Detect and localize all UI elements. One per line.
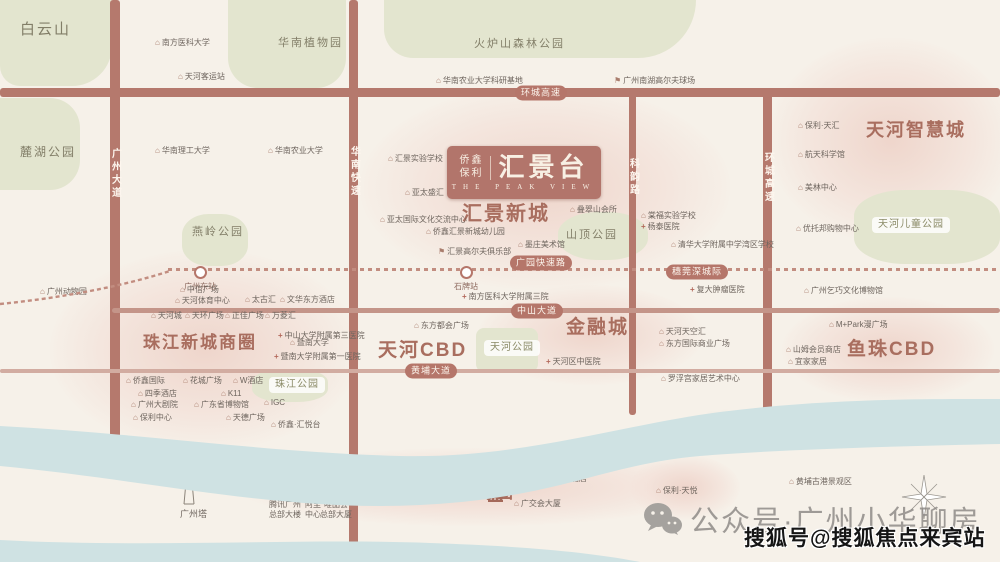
park-name-label: 火炉山森林公园 bbox=[474, 39, 565, 50]
poi-label: ⌂黄埔古港景观区 bbox=[789, 478, 852, 486]
park-name-label: 白云山 bbox=[20, 22, 71, 37]
building-icon: ⌂ bbox=[126, 377, 131, 385]
park-name-pill: 天河儿童公园 bbox=[872, 217, 950, 233]
poi-label: ⌂亚太盛汇 bbox=[405, 189, 444, 197]
poi-text: 美林中心 bbox=[805, 184, 837, 192]
poi-label: ⌂广东省博物馆 bbox=[194, 401, 249, 409]
poi-text: 侨鑫汇景新城幼儿园 bbox=[433, 228, 505, 236]
poi-text: 侨鑫·汇悦台 bbox=[278, 421, 321, 429]
hq-tower-label: ⌂腾讯广州总部大楼 bbox=[269, 488, 301, 520]
poi-label: ⌂天德广场 bbox=[226, 414, 265, 422]
poi-text: 复大肿瘤医院 bbox=[697, 286, 745, 294]
brand-icon: ⌂ bbox=[798, 122, 803, 130]
park-name-pill: 珠江公园 bbox=[269, 377, 325, 393]
museum-icon: ⌂ bbox=[194, 401, 199, 409]
poi-text: 汇景高尔夫俱乐部 bbox=[447, 248, 511, 256]
poi-label: ⌂太古汇 bbox=[245, 296, 276, 304]
mall-icon: ⌂ bbox=[221, 390, 226, 398]
poi-label: ⌂美林中心 bbox=[798, 184, 837, 192]
pazhou-complex-label: 琶洲会展中心 bbox=[452, 466, 500, 477]
poi-text: 罗浮宫家居艺术中心 bbox=[668, 375, 740, 383]
logo-divider bbox=[490, 156, 491, 180]
poi-text: M+Park漫广场 bbox=[836, 321, 888, 329]
poi-text: 墨庄美术馆 bbox=[525, 241, 565, 249]
poi-label: ⚑广州南湖高尔夫球场 bbox=[614, 77, 695, 85]
road-name-vertical: 华南快速 bbox=[347, 146, 362, 198]
poi-label: ⌂华南农业大学科研基地 bbox=[436, 77, 523, 85]
poi-label: ⌂宜家家居 bbox=[788, 358, 827, 366]
brand-icon: ⌂ bbox=[271, 421, 276, 429]
poi-label: ⌂广州乞巧文化博物馆 bbox=[804, 287, 883, 295]
road bbox=[629, 92, 636, 415]
poi-text: 东方国际商业广场 bbox=[666, 340, 730, 348]
poi-text: 广州南湖高尔夫球场 bbox=[623, 77, 695, 85]
school-icon: ⌂ bbox=[388, 155, 393, 163]
pazhou-complex-icon bbox=[406, 459, 450, 477]
building-icon: ⌂ bbox=[659, 328, 664, 336]
canton-tower-label: 广州塔 bbox=[180, 507, 207, 520]
qr-code bbox=[488, 486, 503, 502]
building-icon: ⌂ bbox=[380, 216, 385, 224]
poi-text: 汇景实验学校 bbox=[395, 155, 443, 163]
poi-label: ⌂天河城 bbox=[151, 312, 182, 320]
district-label: 天河智慧城 bbox=[866, 121, 966, 139]
logo-brand-qiaoxin: 侨鑫 bbox=[459, 155, 483, 168]
building-icon: ⌂ bbox=[661, 375, 666, 383]
hotel-icon: ⌂ bbox=[138, 390, 143, 398]
poi-label: ⌂天河体育中心 bbox=[175, 297, 230, 305]
park-name-label: 燕岭公园 bbox=[192, 227, 244, 238]
poi-text: 宜家家居 bbox=[795, 358, 827, 366]
poi-label: ⌂中信广场 bbox=[180, 286, 219, 294]
logo-brands: 侨鑫 保利 bbox=[459, 155, 483, 180]
mall-icon: ⌂ bbox=[225, 312, 230, 320]
school-icon: ⌂ bbox=[290, 339, 295, 347]
district-label: 琶洲商圈 bbox=[435, 483, 515, 501]
hq-tower-line1: 唯品会 bbox=[320, 500, 352, 510]
park-area bbox=[0, 0, 112, 86]
hq-tower-line1: 腾讯广州 bbox=[269, 500, 301, 510]
road-name-badge: 穗莞深城际 bbox=[666, 265, 728, 280]
poi-label: ⌂保利中心 bbox=[133, 414, 172, 422]
plaza-icon: ⌂ bbox=[183, 377, 188, 385]
logo-brand-poly: 保利 bbox=[459, 168, 483, 181]
museum-icon: ⌂ bbox=[798, 151, 803, 159]
mall-icon: ⌂ bbox=[185, 312, 190, 320]
poi-label: ⌂保利·天汇 bbox=[798, 122, 840, 130]
building-icon: ⌂ bbox=[570, 206, 575, 214]
school-icon: ⌂ bbox=[426, 228, 431, 236]
project-logo: 侨鑫 保利 汇景台 THE PEAK VIEW bbox=[447, 146, 601, 199]
poi-label: ⌂天河客运站 bbox=[178, 73, 225, 81]
poi-text: 天河城 bbox=[158, 312, 182, 320]
poi-label: ⌂正佳广场 bbox=[225, 312, 264, 320]
museum-icon: ⌂ bbox=[131, 401, 136, 409]
logo-subtitle: THE PEAK VIEW bbox=[452, 184, 597, 191]
poi-text: 四季酒店 bbox=[145, 390, 177, 398]
poi-label: ⌂K11 bbox=[221, 390, 241, 398]
building-icon: ⌂ bbox=[414, 322, 419, 330]
poi-label: ⌂华南农业大学 bbox=[268, 147, 323, 155]
poi-label: ⌂航天科学馆 bbox=[798, 151, 845, 159]
poi-text: 香格里拉大酒店 bbox=[531, 475, 587, 483]
river-name-jiang: 江 bbox=[831, 407, 858, 441]
hq-tower-line2: 总部大楼 bbox=[269, 510, 301, 520]
poi-label: ⌂华南理工大学 bbox=[155, 147, 210, 155]
poi-text: 天环广场 bbox=[192, 312, 224, 320]
road bbox=[110, 0, 120, 458]
museum-icon: ⌂ bbox=[804, 287, 809, 295]
park-name-pill: 会展公园 bbox=[371, 485, 427, 501]
building-icon: ⌂ bbox=[320, 488, 352, 500]
hospital-icon: + bbox=[274, 353, 279, 361]
poi-text: 南方医科大学附属三院 bbox=[469, 293, 549, 301]
poi-label: ⌂侨鑫汇景新城幼儿园 bbox=[426, 228, 505, 236]
poi-text: 广州大剧院 bbox=[138, 401, 178, 409]
mall-icon: ⌂ bbox=[786, 346, 791, 354]
wechat-icon bbox=[642, 501, 682, 537]
school-icon: ⌂ bbox=[268, 147, 273, 155]
poi-text: 广州动物园 bbox=[47, 288, 87, 296]
poi-text: 杨泰医院 bbox=[648, 223, 680, 231]
station-icon bbox=[460, 266, 473, 279]
poi-label: +暨南大学附属第一医院 bbox=[274, 353, 361, 361]
station-label: 石牌站 bbox=[454, 281, 478, 292]
school-icon: ⌂ bbox=[671, 241, 676, 249]
poi-label: ⌂南方医科大学 bbox=[155, 39, 210, 47]
mall-icon: ⌂ bbox=[796, 225, 801, 233]
poi-text: 保利中心 bbox=[140, 414, 172, 422]
road-name-vertical: 广州大道 bbox=[108, 148, 123, 200]
poi-label: ⌂山姆会员商店 bbox=[786, 346, 841, 354]
railway-dotted-line bbox=[168, 268, 1000, 271]
poi-label: ⌂万菱汇 bbox=[265, 312, 296, 320]
poi-label: ⌂四季酒店 bbox=[138, 390, 177, 398]
poi-label: +南方医科大学附属三院 bbox=[462, 293, 549, 301]
park-area bbox=[0, 98, 80, 190]
school-icon: ⌂ bbox=[641, 212, 646, 220]
poi-text: 广东省博物馆 bbox=[201, 401, 249, 409]
building-icon: ⌂ bbox=[798, 184, 803, 192]
museum-icon: ⌂ bbox=[518, 241, 523, 249]
poi-label: ⌂广州大剧院 bbox=[131, 401, 178, 409]
pearl-river-south bbox=[0, 540, 640, 562]
scenic-icon: ⌂ bbox=[256, 478, 261, 486]
poi-label: ⌂暨南大学 bbox=[290, 339, 329, 347]
district-label: 金融城 bbox=[566, 318, 629, 337]
road bbox=[0, 369, 1000, 373]
mall-icon: ⌂ bbox=[151, 312, 156, 320]
poi-text: 中信广场 bbox=[187, 286, 219, 294]
poi-label: ⌂文华东方酒店 bbox=[280, 296, 335, 304]
poi-label: ⌂花城广场 bbox=[183, 377, 222, 385]
poi-label: ⌂清华大学附属中学湾区学校 bbox=[671, 241, 774, 249]
park-name-label: 华南植物园 bbox=[278, 38, 343, 49]
golf-icon: ⚑ bbox=[438, 248, 445, 256]
poi-label: +杨泰医院 bbox=[641, 223, 680, 231]
district-label: 鱼珠CBD bbox=[847, 340, 936, 359]
building-icon: ⌂ bbox=[305, 488, 321, 500]
poi-label: ⌂墨庄美术馆 bbox=[518, 241, 565, 249]
poi-text: 天河客运站 bbox=[185, 73, 225, 81]
location-map: 环城高速广园快速路穗莞深城际中山大道黄埔大道广州大道华南快速科韵路环城高速广州东… bbox=[0, 0, 1000, 562]
transport-icon: ⌂ bbox=[178, 73, 183, 81]
logo-project-name: 汇景台 bbox=[498, 155, 588, 181]
road-name-badge: 黄埔大道 bbox=[405, 364, 457, 379]
hotel-icon: ⌂ bbox=[280, 296, 285, 304]
road-name-badge: 环城高速 bbox=[515, 86, 567, 101]
park-name-pill: 天河公园 bbox=[484, 340, 540, 356]
zoo-icon: ⌂ bbox=[40, 288, 45, 296]
poi-text: 天德广场 bbox=[233, 414, 265, 422]
poi-text: 侨鑫国际 bbox=[133, 377, 165, 385]
hospital-icon: + bbox=[690, 286, 695, 294]
poi-text: 棠福实验学校 bbox=[648, 212, 696, 220]
park-name-label: 山顶公园 bbox=[566, 230, 618, 241]
poi-text: 文华东方酒店 bbox=[287, 296, 335, 304]
building-icon: ⌂ bbox=[180, 286, 185, 294]
poi-label: ⌂保利·天悦 bbox=[656, 487, 698, 495]
scenic-icon: ⌂ bbox=[789, 478, 794, 486]
poi-text: 保利·天悦 bbox=[663, 487, 698, 495]
poi-label: ⌂侨鑫·汇悦台 bbox=[271, 421, 321, 429]
park-name-label: 麓湖公园 bbox=[20, 146, 76, 158]
hospital-icon: + bbox=[641, 223, 646, 231]
poi-text: 山姆会员商店 bbox=[793, 346, 841, 354]
poi-text: 天河天空汇 bbox=[666, 328, 706, 336]
hq-tower-label: ⌂唯品会总部大厦 bbox=[320, 488, 352, 520]
poi-text: 东方都会广场 bbox=[421, 322, 469, 330]
building-icon: ⌂ bbox=[226, 414, 231, 422]
district-label: 天河CBD bbox=[378, 341, 467, 360]
road-name-vertical: 环城高速 bbox=[761, 152, 776, 204]
school-icon: ⌂ bbox=[436, 77, 441, 85]
station-marker: 石牌站 bbox=[454, 266, 478, 292]
stadium-icon: ⌂ bbox=[175, 297, 180, 305]
poi-label: ⌂W酒店 bbox=[233, 377, 263, 385]
hq-tower-line1: 阿里 bbox=[305, 500, 321, 510]
poi-text: 天河区中医院 bbox=[553, 358, 601, 366]
poi-label: +复大肿瘤医院 bbox=[690, 286, 745, 294]
hq-tower-line2: 总部大厦 bbox=[320, 510, 352, 520]
poi-label: ⌂广州动物园 bbox=[40, 288, 87, 296]
hospital-icon: + bbox=[462, 293, 467, 301]
building-icon: ⌂ bbox=[269, 488, 301, 500]
poi-text: 黄埔古港景观区 bbox=[796, 478, 852, 486]
poi-label: ⚑汇景高尔夫俱乐部 bbox=[438, 248, 511, 256]
poi-label: ⌂广交会大厦 bbox=[514, 500, 561, 508]
poi-label: ⌂亚太国际文化交流中心 bbox=[380, 216, 467, 224]
poi-label: ⌂东方国际商业广场 bbox=[659, 340, 730, 348]
station-icon bbox=[194, 266, 207, 279]
poi-text: 暨南大学附属第一医院 bbox=[281, 353, 361, 361]
poi-label: ⌂罗浮宫家居艺术中心 bbox=[661, 375, 740, 383]
poi-text: K11 bbox=[228, 390, 242, 398]
mall-icon: ⌂ bbox=[264, 399, 269, 407]
hospital-icon: + bbox=[278, 332, 283, 340]
poi-label: ⌂侨鑫国际 bbox=[126, 377, 165, 385]
poi-text: 广交会大厦 bbox=[521, 500, 561, 508]
building-icon: ⌂ bbox=[659, 340, 664, 348]
building-icon: ⌂ bbox=[133, 414, 138, 422]
canton-tower-landmark: 广州塔 bbox=[180, 460, 207, 520]
poi-text: 华南理工大学 bbox=[162, 147, 210, 155]
mall-icon: ⌂ bbox=[245, 296, 250, 304]
poi-label: +天河区中医院 bbox=[546, 358, 601, 366]
poi-text: 万菱汇 bbox=[272, 312, 296, 320]
school-icon: ⌂ bbox=[155, 147, 160, 155]
poi-label: ⌂汇景实验学校 bbox=[388, 155, 443, 163]
hospital-icon: + bbox=[546, 358, 551, 366]
road-name-badge: 中山大道 bbox=[511, 304, 563, 319]
hq-tower-line2: 中心 bbox=[305, 510, 321, 520]
poi-text: 南方医科大学 bbox=[162, 39, 210, 47]
poi-label: ⌂M+Park漫广场 bbox=[829, 321, 888, 329]
mall-icon: ⌂ bbox=[265, 312, 270, 320]
poi-text: 太古汇 bbox=[252, 296, 276, 304]
poi-label: ⌂东方都会广场 bbox=[414, 322, 469, 330]
poi-text: 华南农业大学科研基地 bbox=[443, 77, 523, 85]
sohu-watermark: 搜狐号@搜狐焦点来宾站 bbox=[744, 522, 985, 552]
poi-label: ⌂天河天空汇 bbox=[659, 328, 706, 336]
hotel-icon: ⌂ bbox=[233, 377, 238, 385]
river-name-zhu: 珠 bbox=[710, 407, 737, 441]
poi-text: 花城广场 bbox=[190, 377, 222, 385]
poi-text: 正佳广场 bbox=[232, 312, 264, 320]
poi-text: 广州乞巧文化博物馆 bbox=[811, 287, 883, 295]
poi-label: ⌂优托邦购物中心 bbox=[796, 225, 859, 233]
poi-text: 华南农业大学 bbox=[275, 147, 323, 155]
district-label: 珠江新城商圈 bbox=[143, 334, 257, 351]
mall-icon: ⌂ bbox=[788, 358, 793, 366]
school-icon: ⌂ bbox=[155, 39, 160, 47]
road-name-vertical: 科韵路 bbox=[626, 158, 641, 197]
district-label: 汇景新城 bbox=[462, 204, 550, 224]
poi-label: ⌂IGC bbox=[264, 399, 285, 407]
poi-text: 清华大学附属中学湾区学校 bbox=[678, 241, 774, 249]
poi-label: ⌂香格里拉大酒店 bbox=[524, 475, 587, 483]
poi-text: 天河体育中心 bbox=[182, 297, 230, 305]
poi-text: 叠翠山会所 bbox=[577, 206, 617, 214]
poi-label: ⌂天环广场 bbox=[185, 312, 224, 320]
poi-text: 亚太国际文化交流中心 bbox=[387, 216, 467, 224]
mall-icon: ⌂ bbox=[829, 321, 834, 329]
brand-icon: ⌂ bbox=[656, 487, 661, 495]
poi-text: IGC bbox=[271, 399, 285, 407]
poi-text: 航天科学馆 bbox=[805, 151, 845, 159]
poi-text: 亚太盛汇 bbox=[412, 189, 444, 197]
hotel-icon: ⌂ bbox=[524, 475, 529, 483]
park-area bbox=[182, 214, 248, 266]
road bbox=[763, 92, 772, 412]
building-icon: ⌂ bbox=[405, 189, 410, 197]
hq-tower-label: ⌂阿里中心 bbox=[305, 488, 321, 520]
poi-text: W酒店 bbox=[240, 377, 264, 385]
road bbox=[0, 88, 1000, 97]
poi-label: ⌂棠福实验学校 bbox=[641, 212, 696, 220]
poi-text: 保利·天汇 bbox=[805, 122, 840, 130]
building-icon: ⌂ bbox=[514, 500, 519, 508]
canton-tower-icon bbox=[180, 460, 198, 506]
poi-text: 优托邦购物中心 bbox=[803, 225, 859, 233]
poi-label: ⌂琶醍啤酒文化创意艺术区 bbox=[256, 478, 351, 486]
poi-text: 琶醍啤酒文化创意艺术区 bbox=[263, 478, 351, 486]
poi-text: 暨南大学 bbox=[297, 339, 329, 347]
golf-icon: ⚑ bbox=[614, 77, 621, 85]
road-name-badge: 广园快速路 bbox=[510, 256, 572, 271]
poi-label: ⌂叠翠山会所 bbox=[570, 206, 617, 214]
